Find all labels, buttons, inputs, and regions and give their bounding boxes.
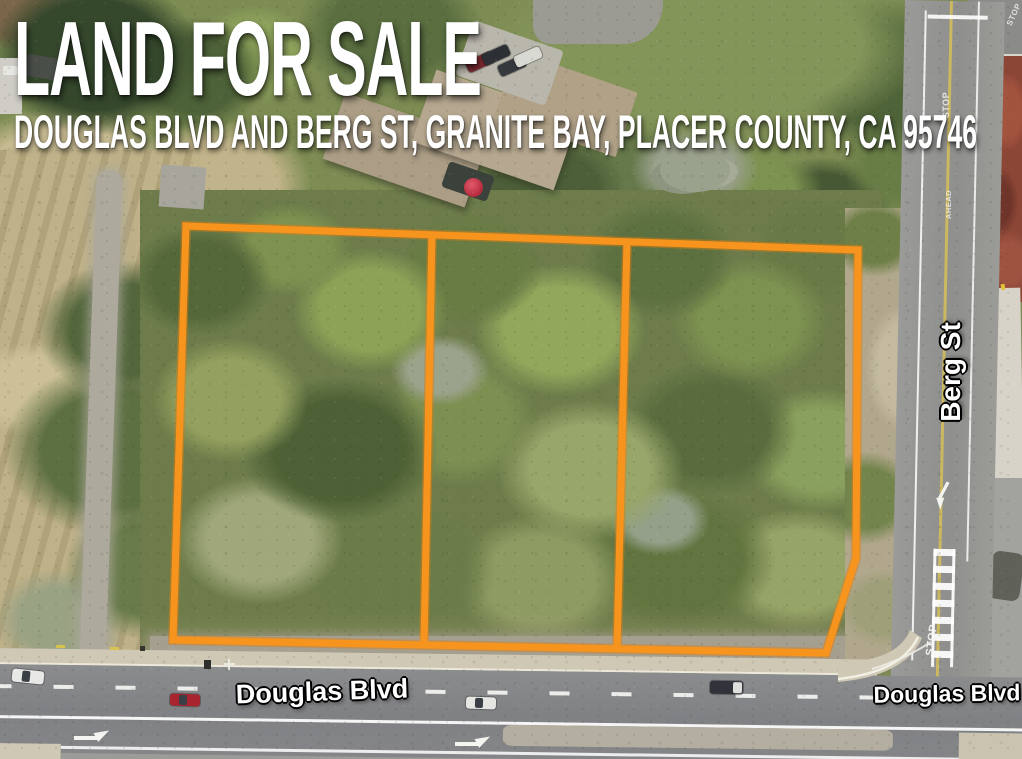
street-label-berg-st: Berg St: [935, 322, 967, 422]
lot-divider-line: [424, 234, 432, 644]
ahead-road-marking: AHEAD: [944, 190, 953, 219]
land-for-sale-flyer: Berg St Douglas Blvd Douglas Blvd STOP S…: [0, 0, 1022, 759]
corner-sidewalk: [838, 630, 922, 682]
lot-divider-line: [617, 241, 627, 650]
street-label-douglas-blvd-east: Douglas Blvd: [873, 679, 1020, 709]
parcel-boundary: [173, 226, 858, 653]
parcel-boundary-glow: [173, 226, 858, 653]
stop-road-marking: STOP: [941, 92, 951, 118]
parcel-outline: [0, 0, 1022, 759]
parcel-outer-boundary: [173, 226, 858, 653]
street-label-douglas-blvd-west: Douglas Blvd: [235, 673, 409, 710]
